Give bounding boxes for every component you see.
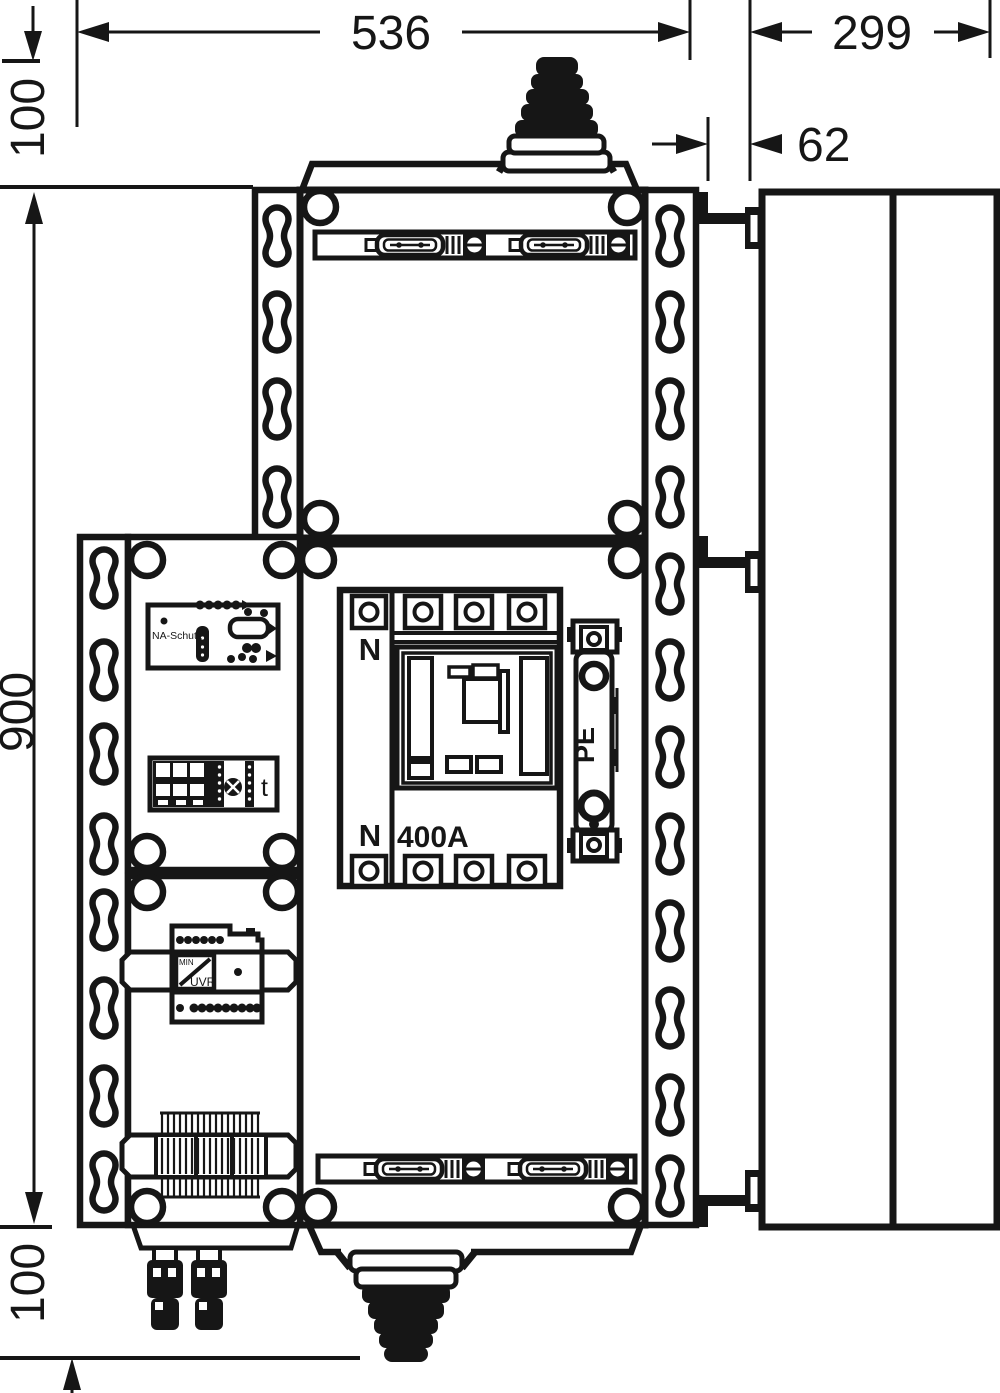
arrowhead-down [24, 31, 42, 61]
arrowhead-left [77, 22, 109, 42]
corner-screw [302, 1191, 334, 1223]
breaker-terminal [456, 596, 492, 628]
keyhole-slot [659, 469, 682, 526]
keyhole-slot [659, 294, 682, 351]
keyhole-slot [93, 892, 116, 949]
arrowhead-right [676, 134, 708, 154]
keyhole-slot [93, 1154, 116, 1211]
corner-screw [266, 876, 298, 908]
corner-screw [304, 191, 336, 223]
side-view [697, 192, 997, 1227]
dim-bottom-gland-label: 100 [2, 1243, 55, 1323]
arrowhead-left [750, 134, 782, 154]
keyhole-slot [659, 556, 682, 613]
front-view: NA-Schutz t [80, 57, 696, 1362]
keyhole-slot [93, 550, 116, 607]
keyhole-slot [659, 1158, 682, 1215]
dim-depth-label: 299 [832, 7, 912, 60]
dim-top-gland: 100 [2, 6, 55, 158]
corner-screw [266, 544, 298, 576]
dim-height-label: 900 [0, 672, 44, 752]
keyhole-slot [266, 381, 289, 438]
cover-latch [365, 1158, 485, 1181]
corner-screw [304, 503, 336, 535]
keyhole-slot [659, 381, 682, 438]
technical-drawing-page: 536 299 62 100 [0, 0, 1000, 1393]
na-schutz-label: NA-Schutz [152, 630, 202, 642]
keyhole-slot [266, 294, 289, 351]
keyhole-slot [659, 990, 682, 1047]
corner-screw [266, 1191, 298, 1223]
breaker-terminal [509, 596, 545, 628]
corner-screw [611, 191, 643, 223]
corner-screw [611, 1191, 643, 1223]
breaker-terminal [405, 596, 441, 628]
pe-fuse-holder: PE [567, 621, 622, 861]
uvr-label: UVR [190, 975, 216, 989]
corner-screw [611, 503, 643, 535]
breaker-terminal [352, 596, 386, 628]
wall-bracket-top [697, 192, 762, 249]
keyhole-slot [659, 642, 682, 699]
corner-screw [131, 1191, 163, 1223]
wall-bracket-middle [697, 536, 762, 593]
dim-offset-label: 62 [797, 119, 850, 172]
neutral-label-top: N [359, 632, 381, 667]
keyhole-slot [93, 980, 116, 1037]
arrowhead-down [25, 1192, 43, 1224]
side-view-body [762, 192, 997, 1227]
keyhole-slot [93, 816, 116, 873]
na-schutz-relay: NA-Schutz [148, 600, 278, 668]
enclosure-dimension-drawing: 536 299 62 100 [0, 0, 1000, 1393]
keyhole-slot [659, 1077, 682, 1134]
led-indicator [161, 618, 168, 625]
arrowhead-right [958, 22, 990, 42]
bottom-lid-right [309, 1225, 641, 1252]
cover-latch [509, 1158, 629, 1181]
corner-screw [611, 544, 643, 576]
keyhole-slot [93, 1068, 116, 1125]
latch-bar-bottom [318, 1156, 635, 1182]
cover-latch [510, 234, 630, 257]
dim-overall-width: 536 [77, 0, 690, 127]
timer-label: t [261, 774, 268, 802]
dim-top-gland-label: 100 [2, 78, 55, 158]
dim-width-label: 536 [351, 7, 431, 60]
latch-bar-top [315, 232, 635, 258]
corner-screw [131, 836, 163, 868]
keyhole-slot [659, 816, 682, 873]
keyhole-slot [659, 729, 682, 786]
dim-bottom-gland: 100 [0, 1227, 360, 1393]
breaker-rating-label: 400A [397, 821, 469, 854]
arrowhead-right [658, 22, 690, 42]
corner-screw [131, 876, 163, 908]
small-cable-gland-left [147, 1248, 183, 1330]
uvr-min-label: MIN [179, 958, 194, 967]
small-cable-gland-right [191, 1248, 227, 1330]
arrowhead-up [63, 1358, 81, 1390]
bottom-lid-left [133, 1225, 298, 1248]
keyhole-slot [93, 642, 116, 699]
enclosure-left-upper-box [128, 537, 300, 870]
arrowhead-left [750, 22, 782, 42]
corner-screw [131, 544, 163, 576]
keyhole-slot [266, 469, 289, 526]
neutral-label-bottom: N [359, 818, 381, 853]
cover-latch [366, 234, 486, 257]
keyhole-slot [266, 208, 289, 265]
circuit-breaker: N N 400A [340, 590, 560, 886]
keyhole-slot [659, 208, 682, 265]
keyhole-slot [93, 726, 116, 783]
pe-label: PE [570, 727, 600, 763]
arrowhead-up [25, 192, 43, 224]
corner-screw [302, 544, 334, 576]
display-window [230, 619, 268, 637]
top-cable-gland [499, 57, 614, 172]
bottom-cable-gland [337, 1252, 475, 1362]
dim-side-depth: 299 [750, 0, 990, 181]
corner-screw [266, 836, 298, 868]
breaker-toggle [464, 679, 501, 722]
keyhole-slot [659, 903, 682, 960]
wall-bracket-bottom [697, 1170, 762, 1227]
timer-module: t [150, 758, 277, 810]
